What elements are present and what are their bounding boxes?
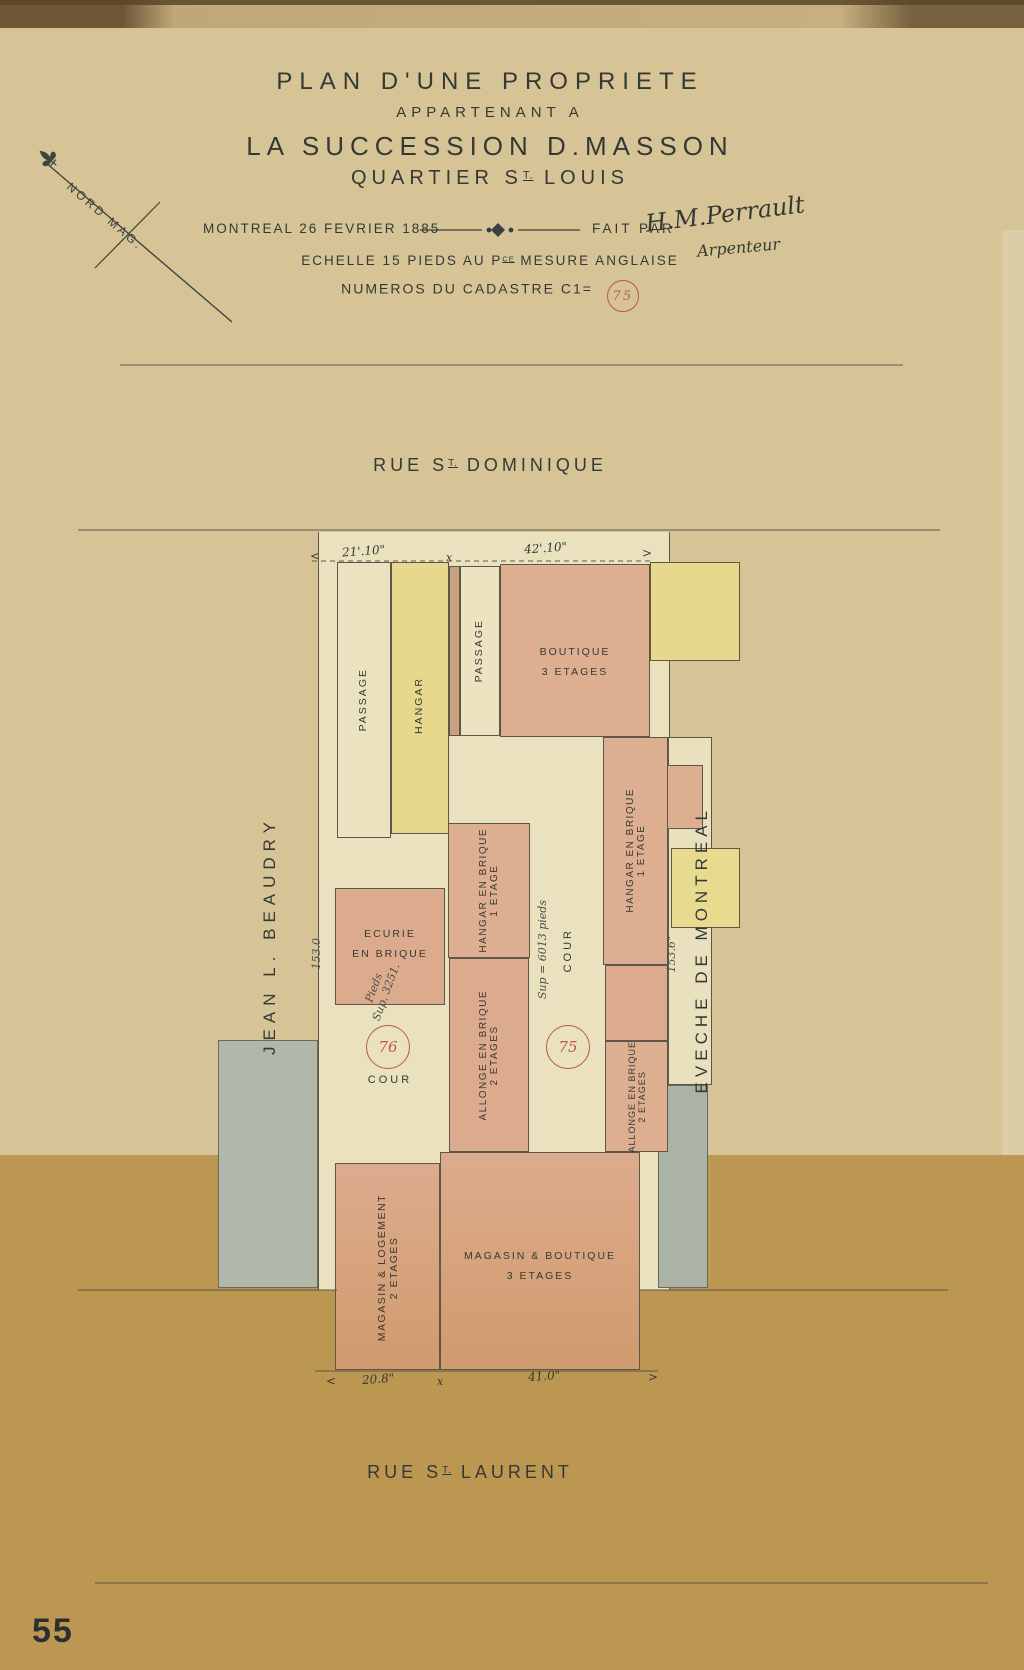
title-line4: QUARTIER ST. LOUIS [110,167,870,190]
paper-right-edge [1002,230,1024,1155]
block-thin-strip [449,566,460,736]
grey-yard-left [218,1040,318,1288]
label-passage-left: PASSAGE [337,600,391,800]
divider-ornament [420,223,580,237]
paper-top-shadow [0,0,1024,5]
label-magasin-logement: MAGASIN & LOGEMENT 2 ETAGES [335,1170,440,1365]
plan-sheet: PLAN D'UNE PROPRIETE APPARTENANT A LA SU… [0,0,1024,1670]
neighbor-jean-beaudry: JEAN L. BEAUDRY [252,800,288,1070]
dim-top-right: 42'.10" [524,540,568,557]
place-date: MONTREAL 26 FEVRIER 1885 [203,221,440,236]
block-yellow-top-right [650,562,740,661]
label-magasin-boutique: MAGASIN & BOUTIQUE3 ETAGES [440,1242,640,1292]
label-boutique: BOUTIQUE3 ETAGES [500,638,650,688]
label-allonge-left: ALLONGE EN BRIQUE 2 ETAGES [449,958,529,1152]
dim-top-left: 21'.10" [342,543,386,560]
label-cour-left: COUR [335,1074,445,1086]
dim-x-top: x [446,551,452,564]
dim-side-left: 153.0 [308,922,324,986]
street-rue-st-laurent: RUE ST. LAURENT [230,1462,710,1483]
page-title: PLAN D'UNE PROPRIETE [110,68,870,96]
dim-bottom-right: 41.0" [528,1368,561,1384]
dim-arrow-left-top: < [310,549,320,563]
label-hangar-brique-left: HANGAR EN BRIQUE 1 ETAGE [448,823,530,958]
dim-arrow-right-bottom: > [648,1370,658,1384]
lot-number-76: 76 [366,1025,410,1069]
title-line2: APPARTENANT A [110,104,870,121]
dim-arrow-right-top: > [642,546,652,560]
surveyor-signature: H.M.Perrault [644,190,806,237]
cadastre-number-circle: 75 [607,280,639,312]
lot-number-75: 75 [546,1025,590,1069]
dim-side-right: 153.6" [663,922,679,986]
page-number: 55 [32,1612,74,1651]
title-line3: LA SUCCESSION D.MASSON [110,131,870,162]
label-hangar-brique-right: HANGAR EN BRIQUE 1 ETAGE [603,758,668,943]
scale-note: ECHELLE 15 PIEDS AU PCE MESURE ANGLAISE [110,253,870,268]
label-passage-mid: PASSAGE [460,566,500,736]
block-plain-right [605,965,668,1041]
dim-arrow-left-bottom: < [326,1374,336,1388]
dim-bottom-left: 20.8" [362,1371,395,1387]
dim-x-bottom: x [437,1375,443,1388]
neighbor-eveche-de-montreal: EVECHE DE MONTREAL [684,795,720,1105]
label-hangar: HANGAR [391,580,449,830]
street-rue-st-dominique: RUE ST. DOMINIQUE [250,455,730,476]
label-allonge-right: ALLONGE EN BRIQUE 2 ETAGES [605,1041,668,1152]
note-cour-superficie: Sup = 6013 pieds [531,885,553,1015]
compass-label: NORD MAG. [64,180,146,253]
label-cour-mid: COUR [556,918,580,982]
cadastre-note: NUMEROS DU CADASTRE C1= 75 [110,280,870,312]
